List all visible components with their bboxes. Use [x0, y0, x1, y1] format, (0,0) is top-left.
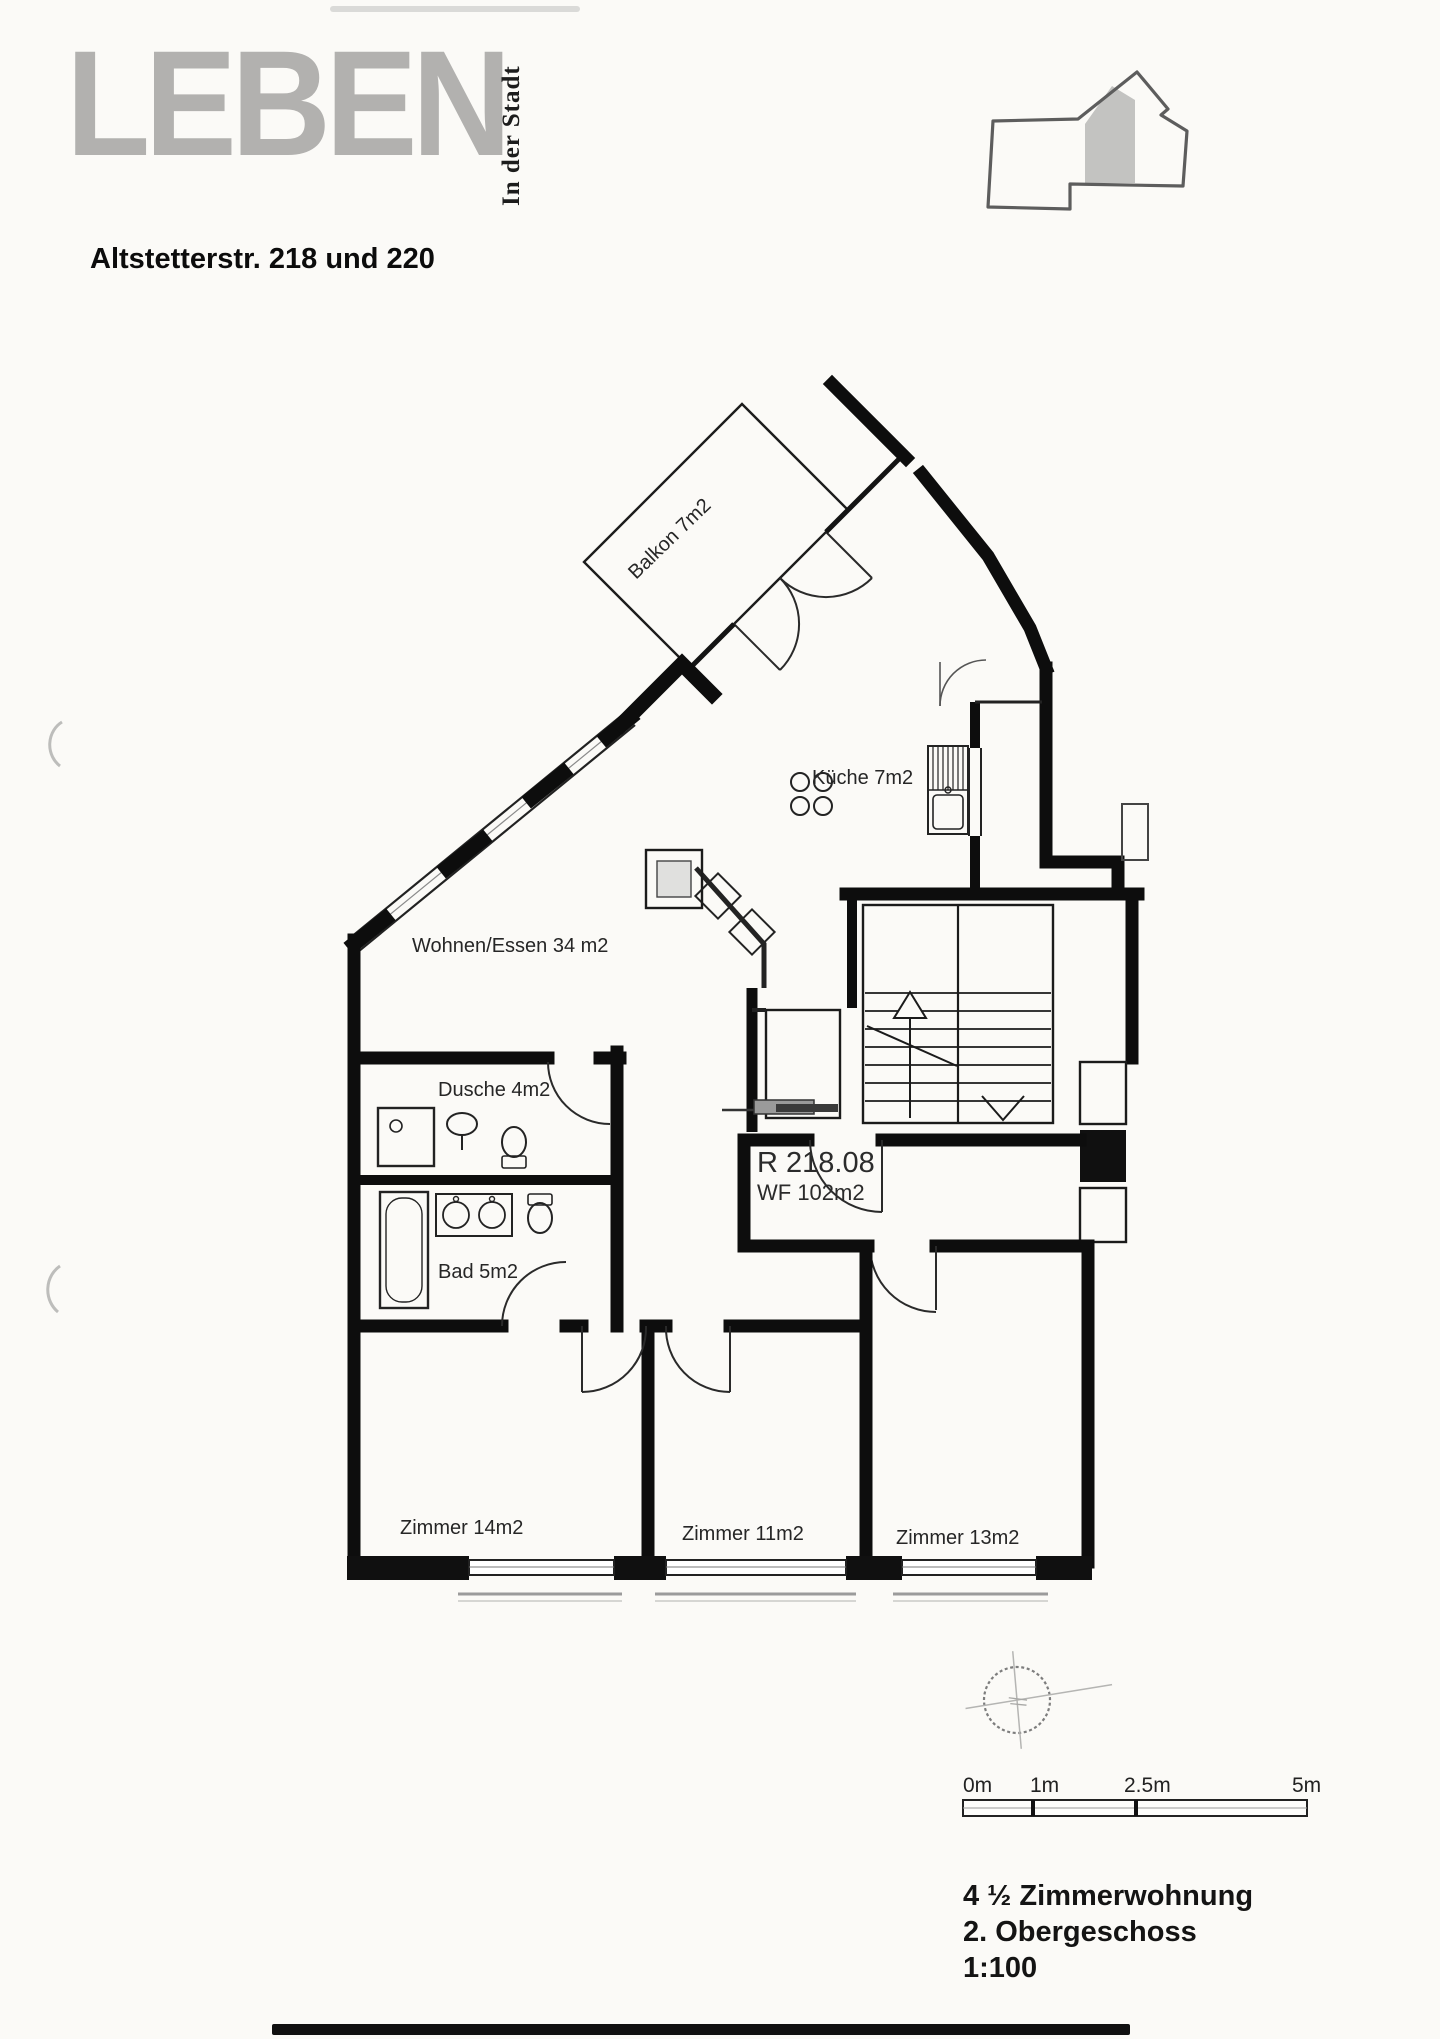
room-label-zimmer11: Zimmer 11m2: [682, 1523, 804, 1545]
unit-area-label: WF 102m2: [757, 1180, 865, 1205]
dusche-door: [548, 1062, 610, 1124]
bad-fixtures: [380, 1192, 552, 1308]
hole-punch-marks: [48, 722, 62, 1312]
elevator: [722, 988, 840, 1132]
corridor-walls: [354, 1246, 866, 1562]
north-compass: [961, 1643, 1117, 1754]
unit-code-label: R 218.08: [757, 1147, 875, 1179]
room-label-kueche: Küche 7m2: [812, 767, 913, 789]
dusche-fixtures: [378, 1108, 526, 1168]
scale-label-0m: 0m: [963, 1774, 992, 1797]
side-shafts: [1080, 1062, 1126, 1242]
scale-label-2-5m: 2.5m: [1124, 1774, 1171, 1797]
landing-door: [940, 660, 986, 706]
site-plan-icon: [988, 72, 1187, 209]
bottom-wall: [347, 1556, 1092, 1601]
outer-walls: [354, 384, 1138, 1562]
stairwell: [863, 905, 1053, 1123]
neighbor-door: [1122, 804, 1148, 860]
zimmer13-door: [870, 1246, 936, 1312]
balcony-outline: [584, 404, 848, 668]
room-label-zimmer13: Zimmer 13m2: [896, 1527, 1019, 1549]
kitchen-right-wall: [969, 702, 1042, 894]
room-label-dusche: Dusche 4m2: [438, 1079, 550, 1101]
balcony-doors: [734, 532, 872, 670]
window-band-diagonal: [350, 712, 635, 951]
scale-label-1m: 1m: [1030, 1774, 1059, 1797]
shaft-square: [646, 850, 702, 908]
scale-bar: 0m 1m 2.5m 5m: [963, 1774, 1321, 1816]
room-label-bad: Bad 5m2: [438, 1261, 518, 1283]
room-label-zimmer14: Zimmer 14m2: [400, 1517, 523, 1539]
scale-label-5m: 5m: [1292, 1774, 1321, 1797]
wall-corner-v: [622, 664, 712, 724]
room-label-wohnen: Wohnen/Essen 34 m2: [412, 935, 608, 957]
floorplan-drawing: Balkon 7m2: [0, 0, 1440, 2039]
